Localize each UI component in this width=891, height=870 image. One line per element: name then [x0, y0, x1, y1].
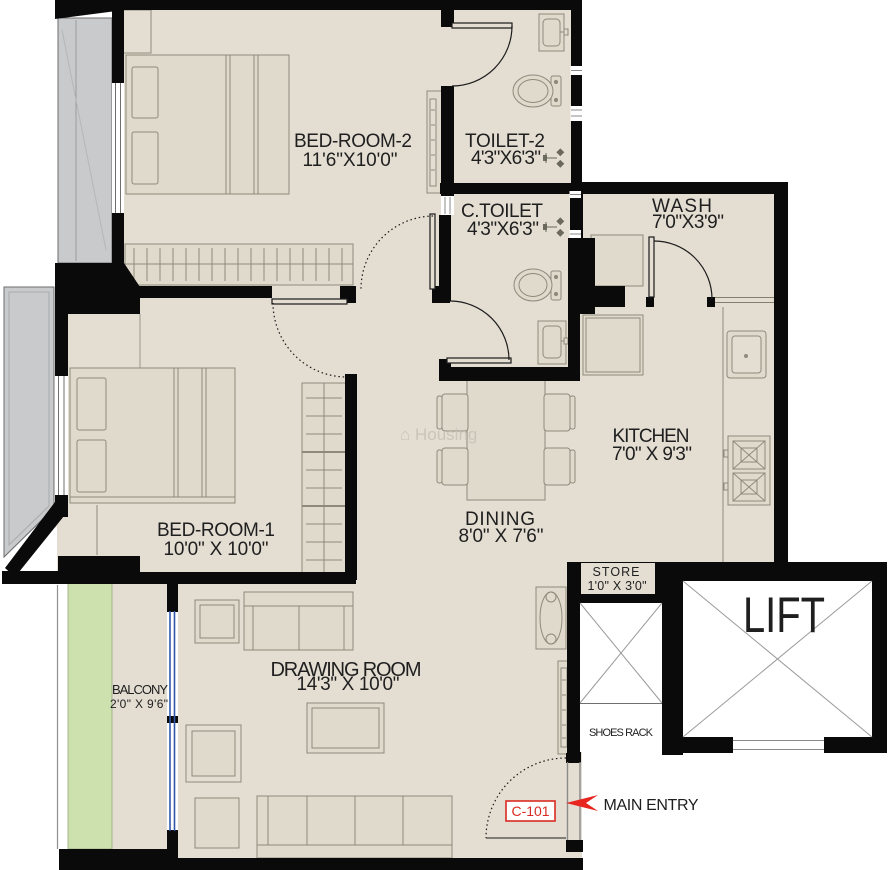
- svg-text:C-101: C-101: [512, 803, 550, 819]
- svg-text:⌂ Housing: ⌂ Housing: [400, 425, 477, 444]
- svg-text:BALCONY: BALCONY: [112, 682, 168, 697]
- svg-text:2'0" X 9'6": 2'0" X 9'6": [110, 697, 168, 711]
- svg-text:4'3"X6'3": 4'3"X6'3": [467, 219, 539, 240]
- svg-text:MAIN ENTRY: MAIN ENTRY: [604, 797, 699, 814]
- svg-text:7'0"X3'9": 7'0"X3'9": [652, 212, 724, 233]
- svg-text:BED-ROOM-2: BED-ROOM-2: [294, 131, 412, 152]
- svg-text:4'3"X6'3": 4'3"X6'3": [471, 148, 541, 169]
- svg-text:11'6"X10'0": 11'6"X10'0": [303, 150, 398, 171]
- svg-text:1'0" X 3'0": 1'0" X 3'0": [588, 579, 647, 593]
- svg-text:7'0" X 9'3": 7'0" X 9'3": [612, 444, 692, 465]
- svg-text:10'0" X 10'0": 10'0" X 10'0": [164, 539, 269, 560]
- svg-text:STORE: STORE: [593, 565, 640, 579]
- svg-text:LIFT: LIFT: [743, 587, 825, 643]
- svg-text:SHOES RACK: SHOES RACK: [589, 727, 654, 739]
- svg-text:14'3" X 10'0": 14'3" X 10'0": [297, 674, 400, 695]
- svg-text:8'0" X 7'6": 8'0" X 7'6": [459, 526, 544, 547]
- svg-text:BED-ROOM-1: BED-ROOM-1: [157, 520, 275, 541]
